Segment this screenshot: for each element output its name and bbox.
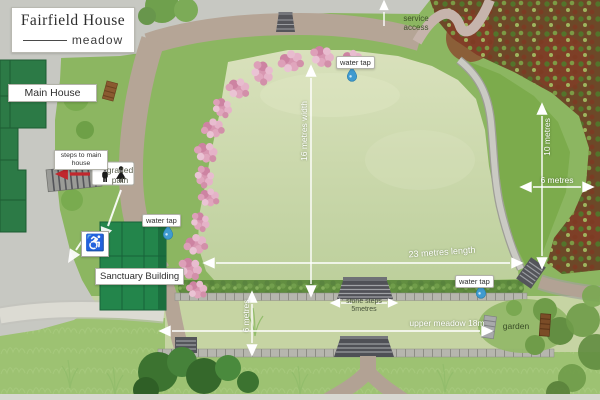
dim-upper-meadow-length: upper meadow 18m — [409, 318, 484, 328]
stone-steps-lower — [334, 336, 394, 357]
map-title-box: Fairfield House meadow — [11, 7, 135, 53]
map-border — [0, 394, 600, 400]
dim-east-border-length: 10 metres — [542, 118, 552, 156]
site-map: Fairfield House meadow Main House steps … — [0, 0, 600, 400]
title-divider — [23, 40, 67, 41]
dim-meadow-width: 16 metres width — [299, 101, 309, 161]
page-title: Fairfield House — [12, 12, 134, 30]
page-subtitle: meadow — [72, 33, 123, 47]
steps-to-main-house-label: steps to main house — [54, 150, 108, 170]
dim-upper-meadow-depth: 6 metres — [241, 299, 251, 332]
steps-north-bank — [276, 12, 295, 32]
stone-steps-upper — [337, 277, 393, 299]
garden-bench — [539, 314, 551, 337]
sanctuary-building-label: Sanctuary Building — [95, 268, 184, 285]
map-graphics — [0, 0, 600, 400]
water-tap-label-southeast: water tap — [455, 275, 494, 288]
sanctuary-building — [100, 222, 166, 310]
water-tap-label-west: water tap — [142, 214, 181, 227]
water-tap-label-north: water tap — [336, 56, 375, 69]
dim-east-border-width: 6 metres — [540, 175, 573, 185]
main-house-label: Main House — [8, 84, 97, 102]
wheelchair-access-icon: ♿ — [81, 231, 109, 257]
